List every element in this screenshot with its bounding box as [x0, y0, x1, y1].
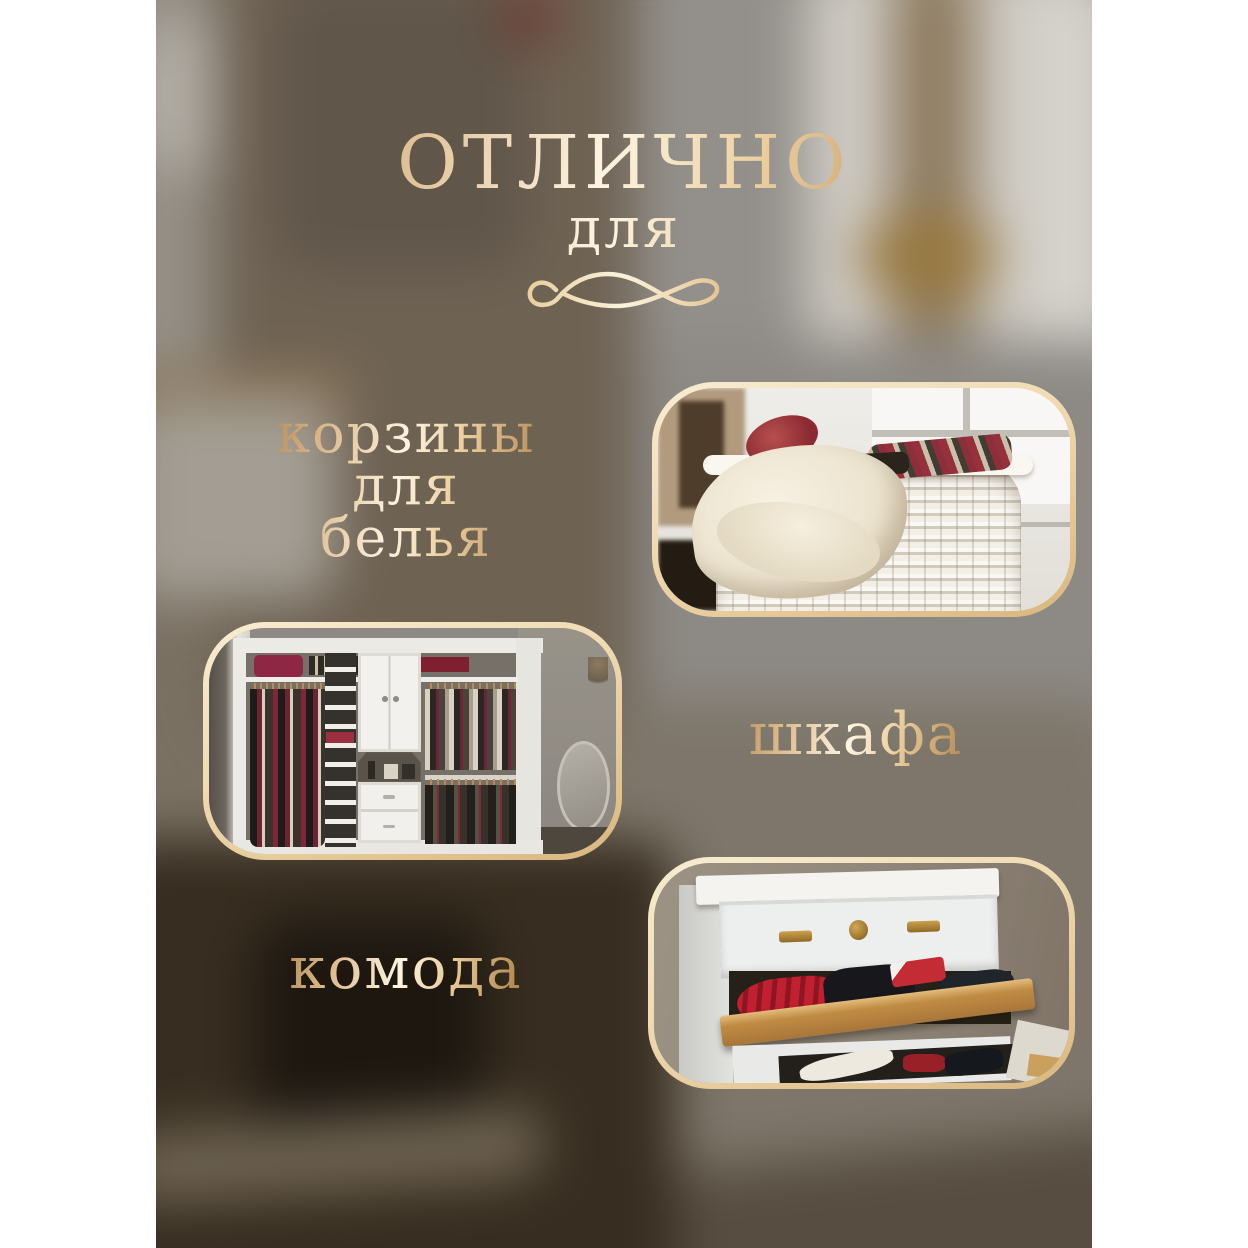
photo-frame-wardrobe	[203, 622, 622, 860]
label-laundry-baskets: корзины для белья	[246, 408, 566, 564]
label-dresser: комода	[266, 934, 546, 1002]
drawer-handle	[383, 795, 395, 799]
sconce-lamp	[588, 657, 608, 691]
closet-frame	[233, 638, 542, 653]
bg-red-ornament	[496, 0, 560, 44]
closet-frame	[233, 638, 246, 848]
poster-subtitle: для	[156, 200, 1092, 258]
brass-knob	[849, 920, 868, 940]
poster-title: ОТЛИЧНО	[156, 126, 1092, 200]
hanging-clothes-left	[250, 689, 325, 847]
perfume-bottle	[368, 761, 375, 779]
oval-mirror	[557, 741, 610, 831]
white-drawers	[358, 782, 421, 843]
flourish-swirl-icon	[156, 266, 1092, 314]
shoe-shelves	[325, 653, 356, 847]
red-item	[903, 1054, 945, 1072]
photo-frame-laundry-basket	[652, 382, 1076, 617]
white-cabinet	[358, 653, 421, 752]
label-line: белья	[246, 512, 566, 564]
photo-dresser	[654, 863, 1069, 1083]
hanging-clothes-top-right	[425, 689, 517, 770]
closet-frame	[516, 638, 540, 848]
brass-handle	[907, 921, 941, 933]
label-wardrobe: шкафа	[716, 700, 996, 768]
red-shoes	[326, 732, 354, 743]
page: { "poster": { "title": "ОТЛИЧНО", "subti…	[0, 0, 1248, 1248]
perfume-bottle	[402, 764, 414, 780]
photo-frame-dresser	[648, 857, 1075, 1089]
cabinet-knob	[382, 696, 388, 702]
label-line: корзины	[246, 408, 566, 460]
perfume-bottle	[384, 764, 398, 780]
photo-laundry-basket	[658, 388, 1070, 611]
hanging-clothes-bottom-right	[425, 785, 517, 844]
cabinet-knob	[393, 696, 399, 702]
brass-handle	[778, 931, 812, 943]
drawer-handle	[383, 825, 395, 829]
photo-wardrobe	[209, 628, 616, 854]
poster-canvas: ОТЛИЧНО для корзины для белья шкафа комо…	[156, 0, 1092, 1248]
red-bag	[254, 655, 303, 676]
red-box	[417, 657, 470, 672]
label-line: для	[246, 460, 566, 512]
